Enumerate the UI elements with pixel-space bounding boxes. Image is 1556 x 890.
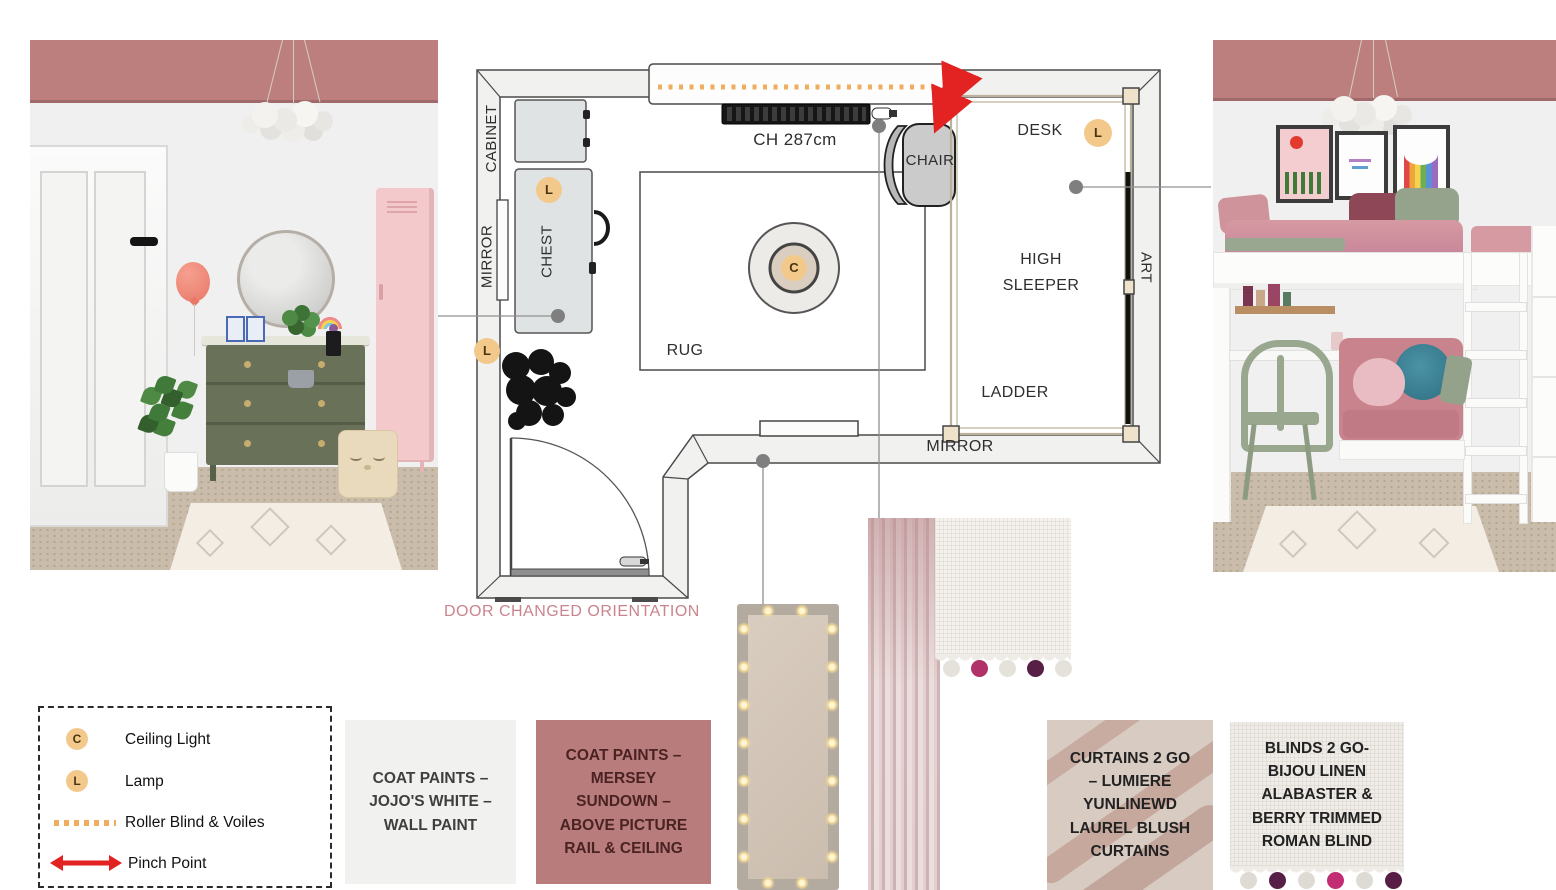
- label-desk: DESK: [1010, 122, 1070, 140]
- blind-fabric: [935, 518, 1071, 656]
- mirror-glass: [748, 615, 828, 879]
- led-lights-right: [825, 610, 839, 884]
- label-chair: CHAIR: [901, 152, 959, 169]
- legend-roller-blind-label: Roller Blind & Voiles: [125, 814, 265, 832]
- pom-pom-white: [999, 660, 1016, 677]
- cabinet-knob: [583, 110, 590, 119]
- wall-mirror-left-shape: [497, 200, 508, 300]
- led-lights-top: [751, 604, 825, 618]
- label-chest: CHEST: [539, 216, 556, 288]
- legend-pinch-point-label: Pinch Point: [128, 855, 206, 873]
- pom-pom-white: [1356, 872, 1373, 889]
- label-ceiling-height: CH 287cm: [733, 130, 857, 150]
- pom-pom-purple: [1385, 872, 1402, 889]
- cabinet-shape: [515, 100, 586, 162]
- label-mirror-bottom: MIRROR: [918, 438, 1002, 456]
- lamp-marker: L: [536, 177, 562, 203]
- voile-curtain-product: [868, 518, 940, 890]
- pom-pom-white: [1298, 872, 1315, 889]
- pom-pom-white: [1240, 872, 1257, 889]
- ceiling-paint-swatch: COAT PAINTS – MERSEY SUNDOWN – ABOVE PIC…: [536, 720, 711, 884]
- radiator-valve-end: [889, 110, 897, 117]
- legend-lamp-label: Lamp: [125, 773, 164, 791]
- label-cabinet: CABINET: [483, 96, 500, 181]
- door-threshold: [511, 569, 649, 576]
- label-high-sleeper: HIGH SLEEPER: [996, 247, 1086, 298]
- cabinet-knob: [583, 138, 590, 147]
- chest-handle: [594, 212, 608, 244]
- legend-ceiling-light-icon: C: [66, 728, 88, 750]
- pom-pom-white: [1055, 660, 1072, 677]
- door-orientation-note: DOOR CHANGED ORIENTATION: [444, 603, 700, 621]
- legend-pinch-point-icon: [50, 854, 122, 872]
- wall-mirror-bottom-shape: [760, 421, 858, 436]
- label-rug: RUG: [655, 342, 715, 360]
- chest-knob: [589, 262, 596, 274]
- label-art: ART: [1138, 238, 1155, 298]
- design-mood-board: CABINET MIRROR CHEST RUG CH 287cm CHAIR …: [0, 0, 1556, 890]
- lamp-marker: L: [1084, 119, 1112, 147]
- pom-pom-purple: [1269, 872, 1286, 889]
- label-mirror-left: MIRROR: [479, 222, 496, 292]
- lamp-marker: L: [474, 338, 500, 364]
- curtains-swatch-label: CURTAINS 2 GO – LUMIERE YUNLINEWD LAUREL…: [1047, 720, 1213, 890]
- ceiling-light-marker: C: [781, 255, 807, 281]
- legend-lamp-icon: L: [66, 770, 88, 792]
- pom-pom-purple: [1027, 660, 1044, 677]
- wall-paint-swatch: COAT PAINTS – JOJO'S WHITE – WALL PAINT: [345, 720, 516, 884]
- pom-pom-magenta: [1327, 872, 1344, 889]
- door-swing-arc: [511, 438, 649, 576]
- pom-pom-magenta: [971, 660, 988, 677]
- door-foot-mark: [632, 597, 658, 602]
- fluffy-rug: [502, 349, 576, 430]
- door-handle-plan-end: [640, 559, 649, 564]
- pom-pom-white: [943, 660, 960, 677]
- legend-ceiling-light-label: Ceiling Light: [125, 731, 210, 749]
- blinds-swatch-label: BLINDS 2 GO- BIJOU LINEN ALABASTER & BER…: [1230, 722, 1404, 868]
- legend: C Ceiling Light L Lamp Roller Blind & Vo…: [38, 706, 332, 888]
- curtains-swatch: CURTAINS 2 GO – LUMIERE YUNLINEWD LAUREL…: [1047, 720, 1213, 890]
- label-ladder: LADDER: [978, 384, 1052, 402]
- led-lights-left: [737, 610, 751, 884]
- led-mirror-product: [737, 604, 839, 890]
- legend-roller-blind-icon: [54, 820, 116, 826]
- door-foot-mark: [495, 597, 521, 602]
- blinds-swatch: BLINDS 2 GO- BIJOU LINEN ALABASTER & BER…: [1230, 722, 1404, 890]
- roman-blind-sample: [935, 518, 1071, 680]
- window: [649, 64, 947, 104]
- led-lights-bottom: [751, 876, 825, 890]
- blinds-scallop-edge: [1230, 866, 1404, 874]
